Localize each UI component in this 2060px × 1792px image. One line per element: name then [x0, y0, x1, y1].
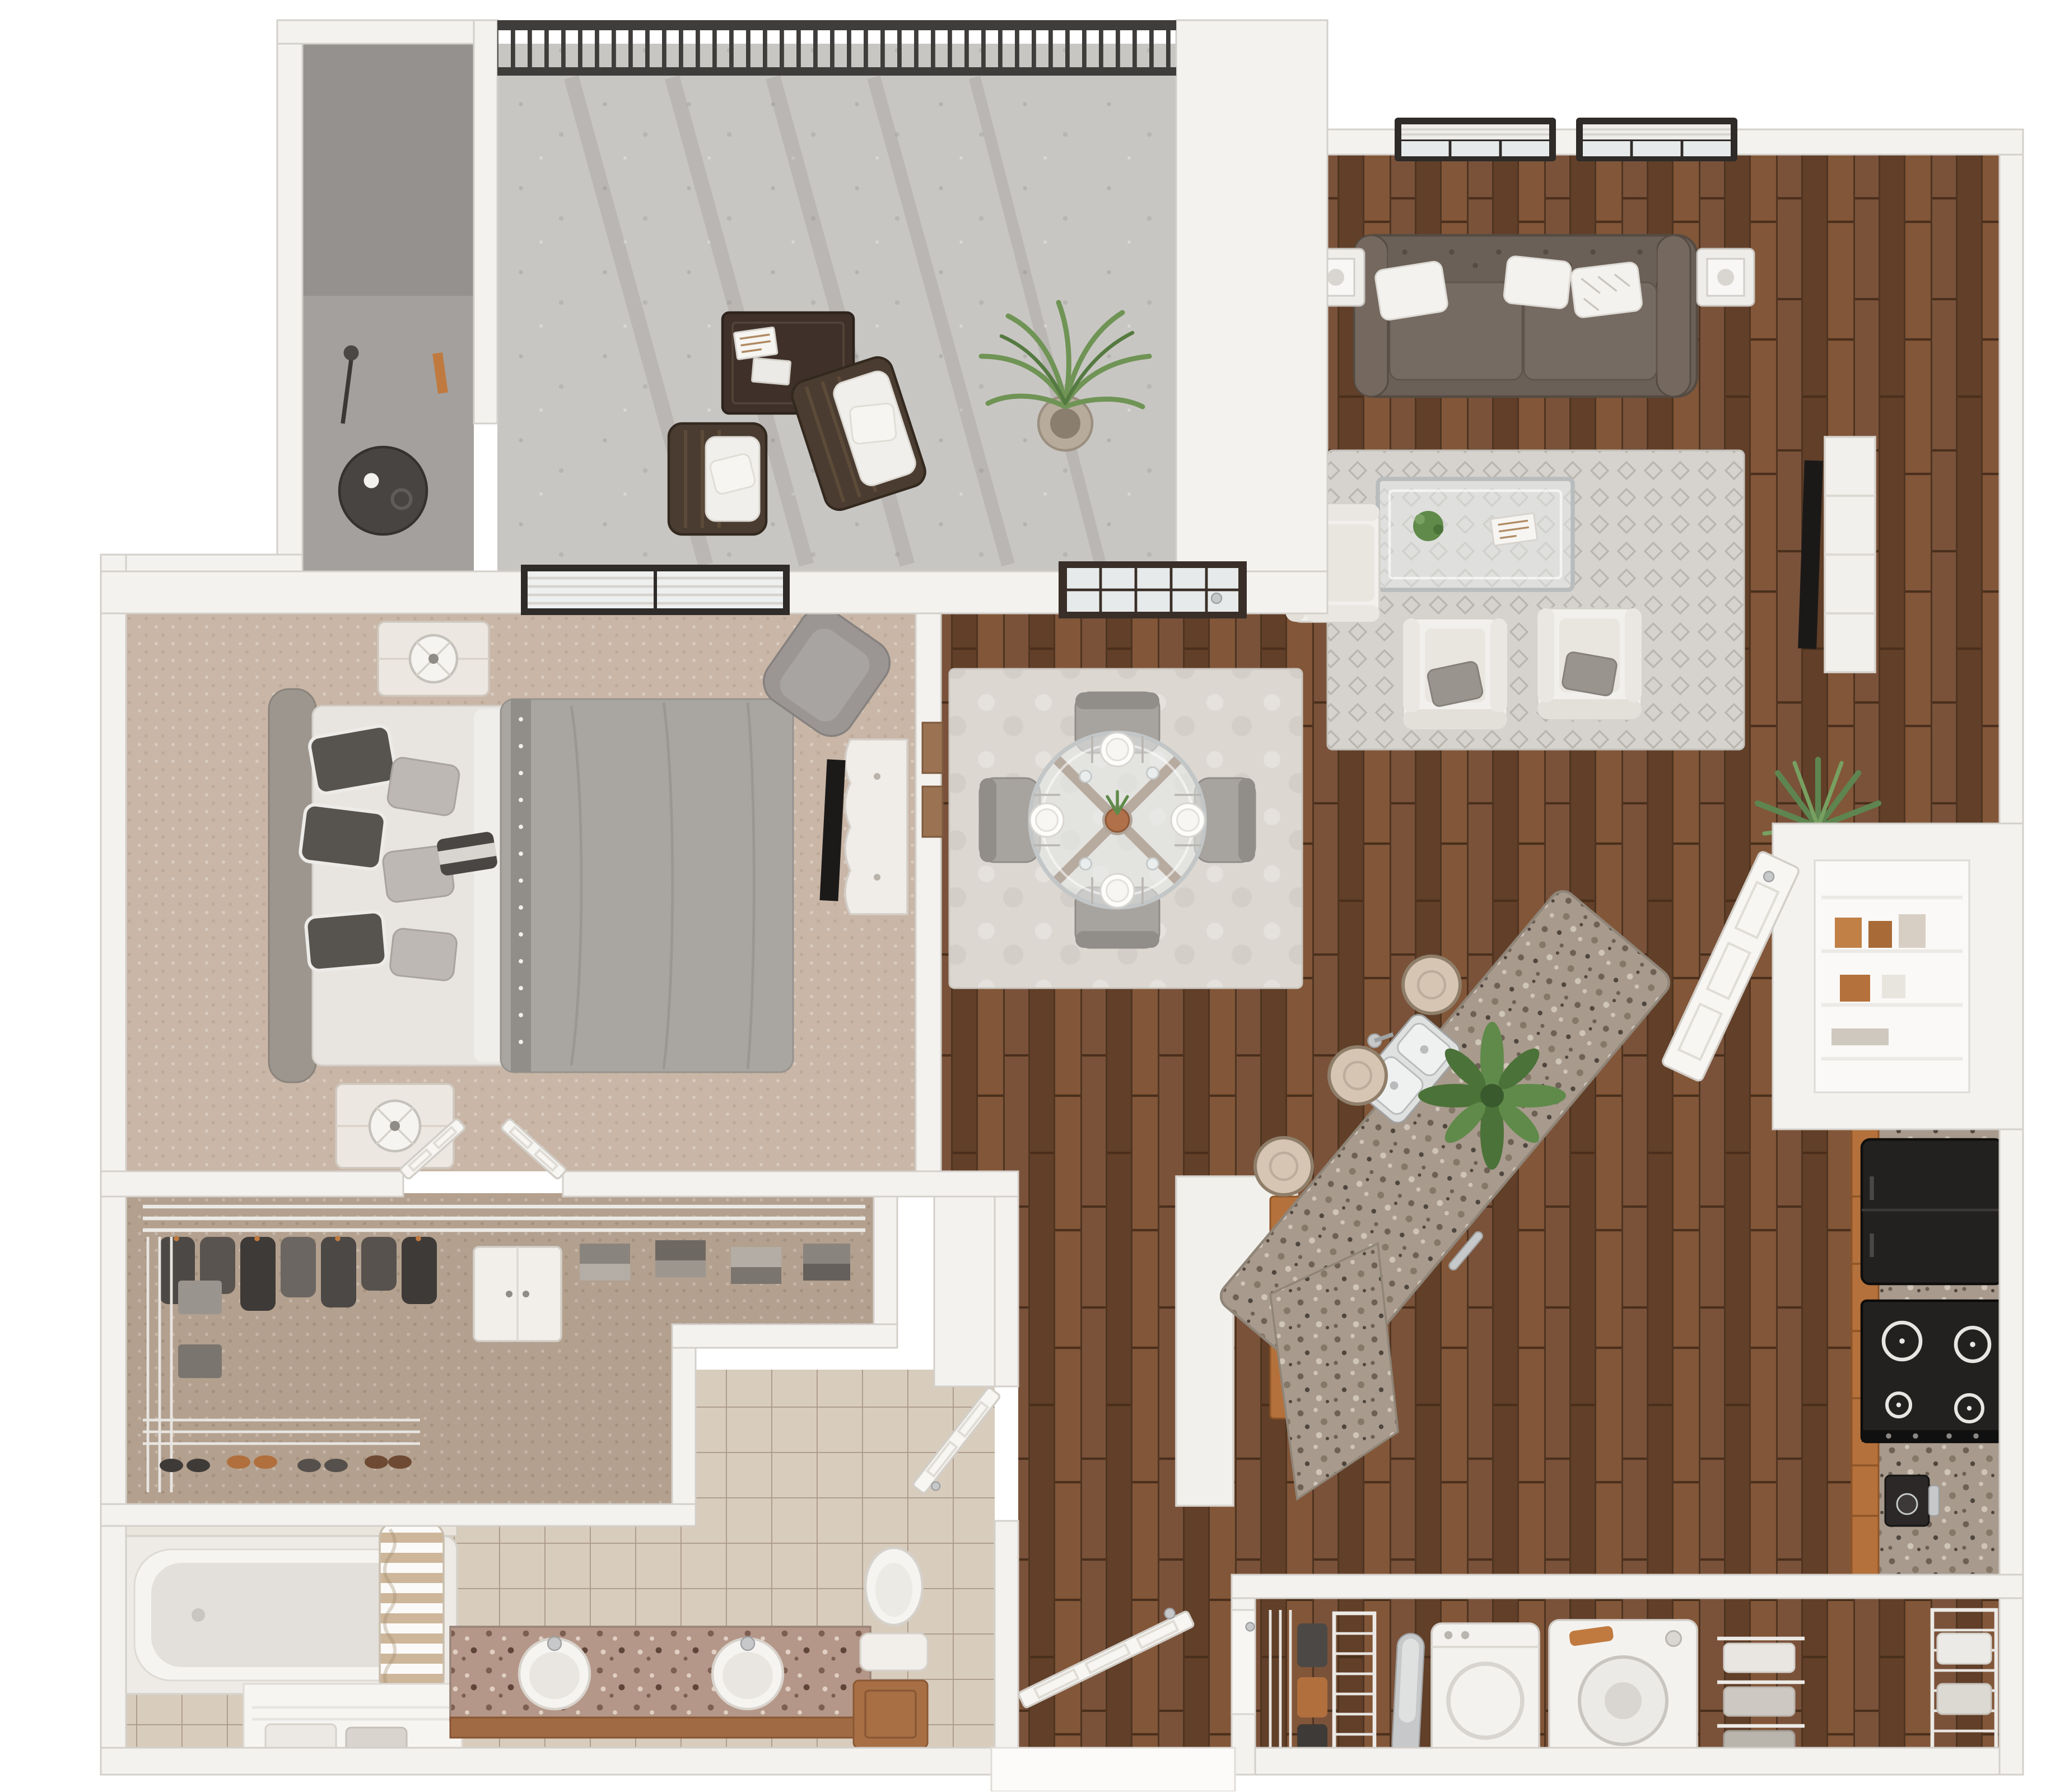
wall-corridor-upper [995, 1197, 1018, 1386]
wall-vestibule-left [672, 1348, 696, 1526]
armchair-pillow-gray [1562, 651, 1618, 697]
floor-plan [0, 0, 2060, 1791]
refrigerator-black [1862, 1139, 2003, 1284]
wall-exterior-bottom-right [1232, 1748, 2023, 1775]
ironing-board [1391, 1633, 1425, 1758]
vanity-wood-face [450, 1717, 870, 1738]
wall-alcove-top [277, 20, 497, 44]
balcony-railing [497, 20, 1176, 76]
magazine [752, 358, 790, 385]
wall-kitchen-laundry [1232, 1575, 2023, 1598]
door-handle [1246, 1623, 1255, 1631]
chair-pillow [850, 403, 897, 444]
nightstand-top [378, 622, 489, 696]
towels [1724, 1644, 1795, 1672]
living-window-2 [1576, 118, 1737, 161]
bedroom-window [521, 565, 790, 615]
storage-nook-shadow [302, 44, 474, 296]
entry-landing [991, 1748, 1235, 1791]
wall-alcove-right [474, 20, 497, 423]
pillow-light [386, 756, 461, 817]
railing-top-rail [497, 20, 1176, 30]
picture-frame [922, 786, 943, 837]
laundry-door [1232, 1610, 1255, 1714]
storage-items [1297, 1623, 1327, 1758]
dresser-with-tv [819, 739, 907, 914]
pillow-light [389, 928, 458, 981]
wall-exterior-bottom-left [101, 1748, 1018, 1775]
washer-dial [1666, 1631, 1681, 1646]
wall-alcove-left [277, 20, 302, 580]
wall-bedroom-closet-right [563, 1171, 1018, 1197]
drink-glass [1080, 858, 1092, 870]
armchair-white-bottom-1 [1403, 618, 1507, 729]
balcony-lounge-chair-left [669, 423, 766, 534]
sheet-fold [474, 709, 504, 1062]
sofa-pillow-patterned [1570, 262, 1643, 318]
wall-column-balcony-living [1176, 20, 1327, 613]
pillow-dark [308, 724, 398, 794]
balcony-french-door [1059, 561, 1247, 618]
drink-glass [1080, 771, 1092, 783]
wall-bedroom-closet-left [101, 1171, 403, 1197]
coffee-table-plant [1413, 511, 1443, 541]
bed-queen [269, 689, 793, 1082]
kitchen-counter-run [1852, 1129, 2003, 1575]
toilet-tank [860, 1633, 928, 1670]
wall-vestibule-top [672, 1324, 897, 1348]
railing-bottom-rail [497, 67, 1176, 76]
media-console [1798, 437, 1875, 672]
magazine [1490, 513, 1537, 546]
centerpiece-vase [1106, 792, 1129, 832]
magazine [734, 327, 777, 360]
lantern-side-table-right [1697, 249, 1754, 306]
granite-vanity-double [450, 1627, 870, 1738]
wall-exterior-left [101, 555, 126, 1775]
drink-glass [1147, 767, 1159, 779]
pillow-dark [299, 804, 386, 871]
bar-stool [1329, 1047, 1386, 1104]
armchair-white-bottom-2 [1537, 608, 1642, 719]
bistro-table [339, 447, 427, 534]
dryer [1432, 1623, 1539, 1761]
living-window-1 [1395, 118, 1556, 161]
drink-glass [1147, 858, 1159, 870]
washer-top-load [1549, 1620, 1697, 1761]
door-handle [1211, 593, 1222, 603]
wall-bedroom-dining [916, 613, 941, 1197]
storage-cabinet-white [474, 1247, 561, 1341]
pantry [1773, 823, 2023, 1129]
glass-coffee-table [1378, 479, 1573, 590]
sofa-pillow [1374, 260, 1449, 321]
tub-drain [192, 1608, 205, 1622]
duvet-gray-nailhead [501, 699, 793, 1072]
towel-shelves-mid [1717, 1639, 1805, 1756]
wall-corridor-lower [995, 1521, 1018, 1748]
picture-frame [922, 723, 943, 773]
bar-stool [1255, 1138, 1312, 1195]
towels [1937, 1684, 1991, 1714]
towels [1937, 1633, 1991, 1664]
wall-closet-bathroom [101, 1504, 696, 1526]
bar-stool [1403, 956, 1460, 1013]
toilet [860, 1548, 928, 1670]
cup [364, 473, 379, 488]
floor-lamp-head [344, 346, 359, 361]
round-glass-dining-table [1030, 733, 1205, 907]
shower-curtain-striped [380, 1523, 444, 1694]
vanity-faucet [741, 1637, 754, 1650]
towels [1724, 1687, 1795, 1716]
range-4-burner [1862, 1301, 2003, 1442]
chesterfield-sofa [1354, 235, 1697, 397]
pillow-dark [305, 911, 387, 971]
vanity-faucet [548, 1637, 561, 1650]
sofa-pillow [1503, 255, 1572, 309]
railing-balusters [497, 30, 1176, 67]
